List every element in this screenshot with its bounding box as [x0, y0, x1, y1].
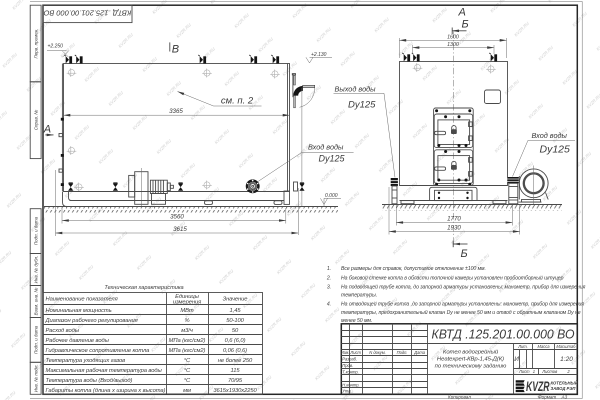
svg-text:м3/ч: м3/ч — [181, 328, 193, 334]
svg-text:Разраб.: Разраб. — [342, 357, 357, 362]
svg-text:1930: 1930 — [447, 224, 461, 231]
svg-text:Инв. № подл.: Инв. № подл. — [34, 364, 39, 392]
svg-text:4.: 4. — [327, 302, 331, 308]
svg-text:3615: 3615 — [173, 226, 187, 233]
svg-text:70/95: 70/95 — [228, 378, 243, 384]
svg-text:КОТЕЛЬНЫЙ: КОТЕЛЬНЫЙ — [551, 381, 579, 386]
svg-text:температуры.: температуры. — [341, 293, 377, 299]
svg-text:На отводящей трубе котла ,до з: На отводящей трубе котла ,до запорной ар… — [341, 301, 584, 308]
svg-text:°С: °С — [184, 378, 191, 384]
svg-text:1600: 1600 — [447, 34, 459, 40]
svg-text:МПа (кгс/см2): МПа (кгс/см2) — [169, 348, 206, 354]
svg-text:Копировал: Копировал — [448, 394, 471, 399]
svg-text:температуры, предохранительный: температуры, предохранительный клапан Dу… — [341, 309, 581, 316]
svg-text:Heatexpert-КВр-1,45-Д(К): Heatexpert-КВр-1,45-Д(К) — [437, 357, 504, 363]
svg-text:Выход воды: Выход воды — [335, 85, 377, 94]
svg-text:А3: А3 — [561, 394, 568, 399]
svg-text:Котел водогрейный: Котел водогрейный — [443, 349, 499, 356]
svg-text:1,45: 1,45 — [230, 308, 242, 314]
svg-text:Формат: Формат — [538, 394, 556, 399]
svg-text:115: 115 — [230, 368, 240, 374]
svg-text:0,6 (6,0): 0,6 (6,0) — [225, 338, 246, 344]
svg-text:Подп. и дата: Подп. и дата — [34, 325, 39, 354]
svg-text:3.: 3. — [327, 285, 331, 291]
svg-text:На подводящей трубе котла, д: На подводящей трубе котла, до запорной а… — [341, 284, 586, 291]
svg-text:А: А — [458, 7, 466, 19]
svg-text:Вход воды: Вход воды — [308, 143, 344, 152]
svg-text:Пров.: Пров. — [342, 363, 353, 368]
svg-text:Лист: Лист — [518, 369, 530, 374]
svg-text:Все размеры для справок, допус: Все размеры для справок, допустимое откл… — [341, 266, 486, 272]
svg-text:Максимальная рабочая температу: Максимальная рабочая температура воды — [46, 368, 163, 374]
svg-text:°С: °С — [184, 358, 191, 364]
svg-text:Температура уходящих газов: Температура уходящих газов — [46, 358, 126, 364]
svg-text:°С: °С — [184, 368, 191, 374]
svg-text:Масштаб: Масштаб — [556, 344, 576, 349]
svg-text:Масса: Масса — [537, 344, 550, 349]
svg-text:На боковой стенке котла в обла: На боковой стенке котла в области топочн… — [341, 274, 564, 281]
svg-text:50: 50 — [232, 328, 239, 334]
svg-text:Расход воды: Расход воды — [46, 328, 80, 334]
svg-text:%: % — [184, 318, 189, 324]
svg-text:ЗАВОД РЭП: ЗАВОД РЭП — [551, 386, 577, 391]
svg-text:0,06 (0,6): 0,06 (0,6) — [223, 348, 247, 354]
svg-text:50-100: 50-100 — [226, 318, 244, 324]
svg-text:Температура воды (Вход/выход): Температура воды (Вход/выход) — [46, 378, 133, 384]
svg-text:Диапазон рабочего регулировани: Диапазон рабочего регулирования — [45, 318, 138, 324]
svg-text:КВТД .125.201.00.000 ВО: КВТД .125.201.00.000 ВО — [44, 8, 132, 17]
svg-text:измерения: измерения — [173, 299, 201, 305]
svg-text:1300: 1300 — [447, 42, 459, 48]
svg-text:Инв. № дубл.: Инв. № дубл. — [34, 256, 39, 284]
svg-text:Подп. и дата: Подп. и дата — [34, 216, 39, 245]
svg-text:Изм.: Изм. — [341, 350, 350, 355]
svg-text:Б: Б — [462, 19, 469, 31]
svg-text:Dy125: Dy125 — [540, 144, 571, 156]
svg-text:+2.250: +2.250 — [48, 43, 64, 49]
svg-text:Н.контр.: Н.контр. — [342, 382, 359, 387]
svg-text:KVZR: KVZR — [526, 378, 550, 394]
svg-text:Номинальная мощность: Номинальная мощность — [46, 308, 112, 314]
svg-text:Дата: Дата — [413, 350, 426, 355]
svg-text:Dy125: Dy125 — [319, 154, 346, 164]
svg-text:Лист: Лист — [349, 350, 361, 355]
svg-text:Габариты котла (длина х ширина: Габариты котла (длина х ширина х высота) — [46, 388, 166, 394]
svg-text:Справ. №: Справ. № — [34, 110, 39, 131]
svg-text:Наименование показателя: Наименование показателя — [46, 297, 118, 303]
svg-text:МВт: МВт — [180, 308, 194, 314]
svg-text:А: А — [43, 123, 51, 135]
svg-text:Подп.: Подп. — [397, 350, 408, 355]
svg-text:Рабочее давление воды: Рабочее давление воды — [46, 338, 110, 344]
svg-text:3365: 3365 — [169, 108, 183, 115]
svg-text:И: И — [514, 356, 519, 363]
svg-text:см. п. 2: см. п. 2 — [221, 96, 254, 107]
svg-text:1770: 1770 — [447, 215, 461, 222]
svg-text:Утв.: Утв. — [342, 389, 351, 394]
svg-text:1:20: 1:20 — [560, 356, 573, 363]
svg-text:Листов: Листов — [541, 369, 558, 374]
svg-text:Dy125: Dy125 — [348, 100, 376, 111]
svg-text:Перв. примен.: Перв. примен. — [34, 29, 39, 59]
svg-text:1.: 1. — [327, 266, 331, 272]
svg-text:МПа (кгс/см2): МПа (кгс/см2) — [169, 338, 206, 344]
svg-text:2.: 2. — [326, 275, 331, 281]
svg-text:Вход воды: Вход воды — [532, 131, 568, 140]
svg-text:по техническому заданию: по техническому заданию — [435, 364, 507, 370]
svg-text:3615х1930х2250: 3615х1930х2250 — [213, 388, 257, 394]
svg-text:Б: Б — [461, 248, 468, 260]
svg-text:1: 1 — [533, 369, 535, 374]
svg-text:не более 250: не более 250 — [218, 358, 253, 364]
svg-text:Гидравлическое сопротивление к: Гидравлическое сопротивление котла — [46, 348, 151, 354]
svg-text:мм: мм — [183, 388, 191, 394]
svg-text:Т.контр.: Т.контр. — [342, 370, 359, 375]
svg-text:Техническая характеристика: Техническая характеристика — [104, 285, 183, 291]
svg-text:N докум.: N докум. — [369, 350, 386, 355]
svg-text:Лит.: Лит. — [517, 344, 528, 349]
svg-text:В: В — [172, 44, 179, 56]
svg-text:3560: 3560 — [170, 213, 184, 220]
svg-text:Взам. инв. №: Взам. инв. № — [34, 287, 39, 315]
svg-text:Значение: Значение — [223, 297, 249, 303]
svg-text:КВТД .125.201.00.000 ВО: КВТД .125.201.00.000 ВО — [432, 327, 575, 342]
